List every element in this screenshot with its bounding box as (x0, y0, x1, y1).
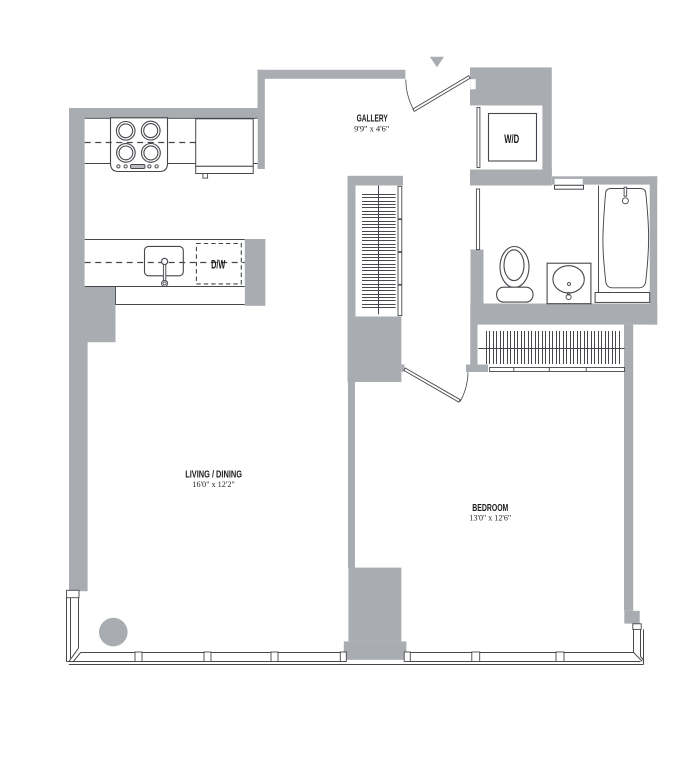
svg-text:D/W: D/W (211, 260, 225, 272)
svg-text:16'0" x 12'2": 16'0" x 12'2" (192, 480, 234, 489)
svg-text:BEDROOM: BEDROOM (472, 502, 508, 514)
svg-text:GALLERY: GALLERY (357, 113, 388, 125)
svg-text:LIVING / DINING: LIVING / DINING (185, 468, 242, 480)
svg-text:W/D: W/D (504, 134, 519, 146)
svg-text:13'0" x 12'6": 13'0" x 12'6" (469, 513, 511, 522)
svg-text:9'9" x 4'6": 9'9" x 4'6" (354, 125, 389, 134)
